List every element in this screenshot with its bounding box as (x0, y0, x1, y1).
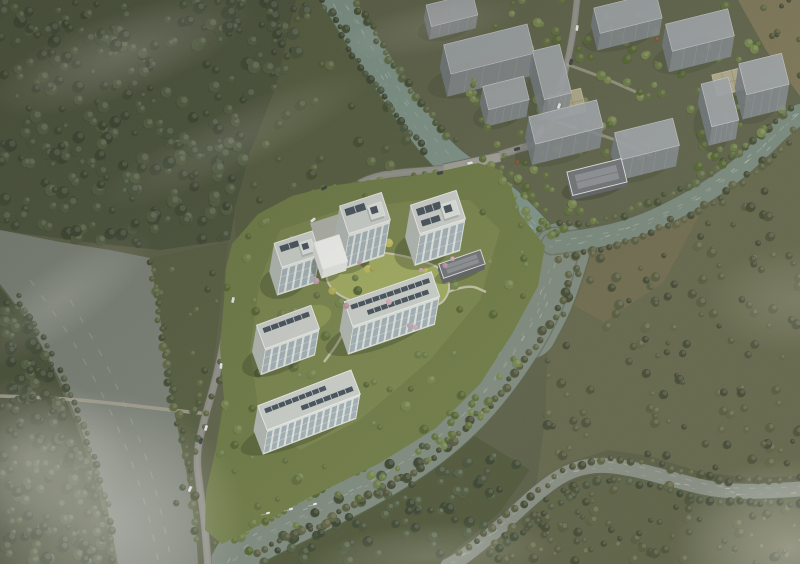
rendering-canvas (0, 0, 800, 564)
atmosphere (0, 0, 800, 564)
aerial-masterplan-rendering (0, 0, 800, 564)
